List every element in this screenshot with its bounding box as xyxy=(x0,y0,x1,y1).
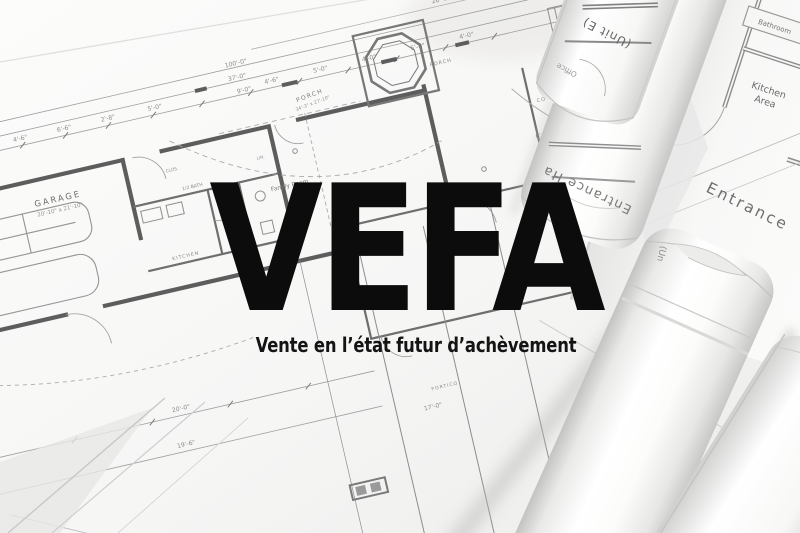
subtitle: Vente en l’état futur d’achèvement xyxy=(101,333,731,357)
title: VEFA xyxy=(73,163,737,338)
vefa-banner: 100'-0" 37'-0" 9'-0" 23'-6" 5'-0" 4'-0" … xyxy=(0,0,800,533)
